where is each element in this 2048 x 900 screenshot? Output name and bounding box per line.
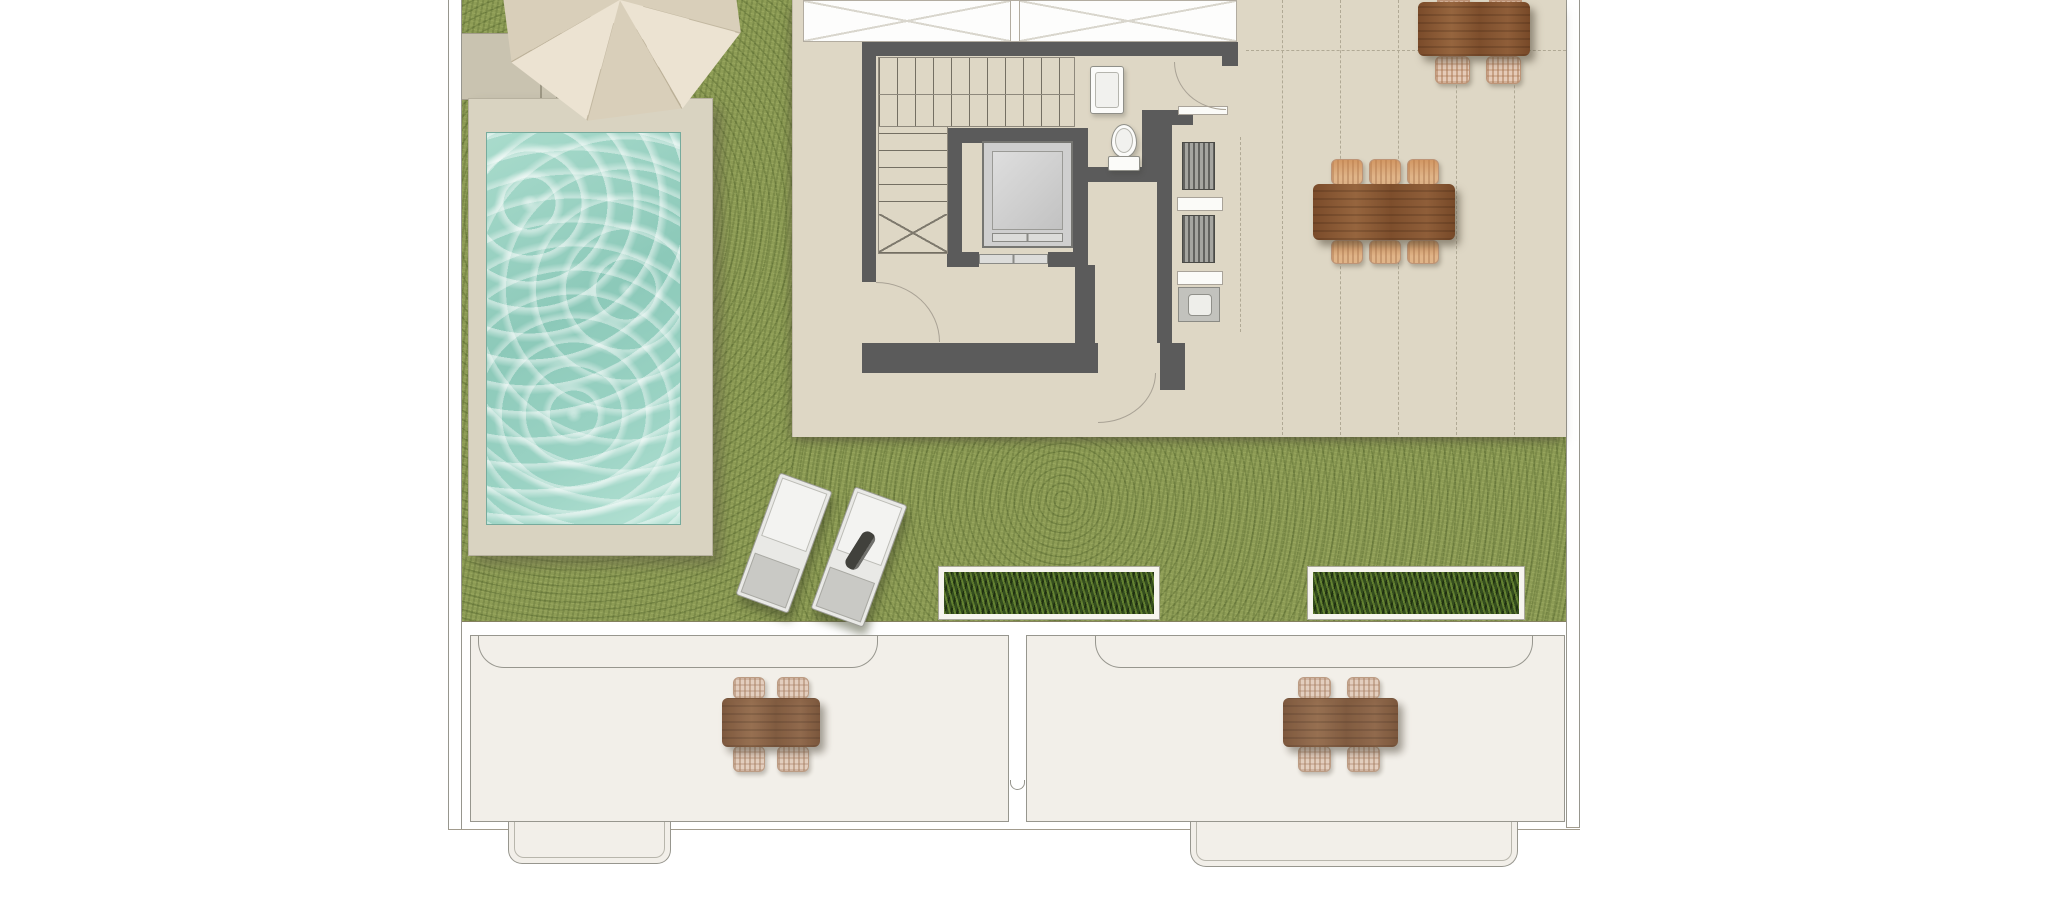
entry-step-inner-line xyxy=(1196,822,1512,861)
stairs-landing-line xyxy=(879,94,1074,95)
wall-kitchen-south xyxy=(1160,343,1185,390)
planter-box-left xyxy=(938,566,1160,620)
kitchen-sink-basin xyxy=(1188,294,1212,316)
dining-chair xyxy=(1331,159,1363,185)
elevator-cab xyxy=(982,141,1073,248)
planter-foliage xyxy=(1313,572,1519,614)
boundary-wall-left xyxy=(448,0,462,830)
planter-foliage xyxy=(944,572,1154,614)
wall-elevator-left xyxy=(947,143,962,267)
stairs-upper-flight xyxy=(878,57,1075,127)
floor-plan-canvas xyxy=(0,0,2048,900)
dining-chair xyxy=(1369,240,1401,264)
entry-step-left xyxy=(508,822,671,864)
wc-sink xyxy=(1090,66,1124,114)
elevator-cab-interior xyxy=(992,151,1063,230)
skylight-cell-right xyxy=(1020,1,1236,41)
wall-kitchen-left xyxy=(1157,110,1172,343)
pool-water xyxy=(486,132,681,525)
dining-table-lower-right xyxy=(1283,698,1398,747)
wall-elevator-bottom-a xyxy=(947,252,979,267)
kitchen-appliance-2 xyxy=(1182,215,1215,263)
dining-chair xyxy=(1347,677,1380,699)
awning-outline-left xyxy=(478,635,878,668)
pergola-beam-line-1 xyxy=(1282,0,1283,435)
elevator-cab-door xyxy=(992,233,1063,242)
kitchen-sink-unit xyxy=(1178,287,1220,322)
elevator-shaft-door xyxy=(979,254,1048,264)
dining-chair xyxy=(777,677,809,699)
downpipe-notch xyxy=(1010,780,1025,790)
dining-chair xyxy=(1298,746,1331,772)
dining-table-lower-left xyxy=(722,698,820,747)
wall-corridor-right xyxy=(1075,265,1095,373)
dining-chair xyxy=(733,677,765,699)
kitchen-appliance-1 xyxy=(1182,142,1215,190)
dining-chair xyxy=(1407,240,1439,264)
dining-chair xyxy=(1486,56,1521,84)
dining-chair xyxy=(1298,677,1331,699)
dining-chair xyxy=(1331,240,1363,264)
kitchen-shelf-2 xyxy=(1177,271,1223,285)
wall-top xyxy=(862,42,1238,56)
wall-wc-right xyxy=(1142,110,1157,182)
dining-chair xyxy=(1407,159,1439,185)
dining-chair xyxy=(1347,746,1380,772)
dining-chair xyxy=(1435,56,1470,84)
wall-bottom xyxy=(862,343,1098,373)
toilet-tank xyxy=(1108,156,1140,171)
planter-box-right xyxy=(1307,566,1525,620)
dining-table-right xyxy=(1313,184,1455,240)
kitchen-counter-dashed-edge xyxy=(1240,137,1241,332)
awning-outline-right xyxy=(1095,635,1533,668)
toilet-bowl xyxy=(1111,124,1137,158)
skylight-divider xyxy=(1010,1,1020,41)
skylight-band xyxy=(803,0,1237,42)
dining-chair xyxy=(1369,159,1401,185)
wc-toilet xyxy=(1108,124,1140,174)
wall-left xyxy=(862,56,876,282)
dining-chair xyxy=(777,746,809,772)
boundary-wall-right xyxy=(1566,0,1580,828)
stairs-break-mark xyxy=(879,214,947,252)
dining-table-top-right xyxy=(1418,2,1530,56)
skylight-cell-left xyxy=(804,1,1010,41)
toilet-seat xyxy=(1115,128,1133,153)
wall-elevator-right xyxy=(1073,143,1088,267)
entry-step-right xyxy=(1190,822,1518,867)
entry-step-inner-line xyxy=(514,822,665,858)
wc-sink-basin xyxy=(1095,72,1119,108)
kitchen-shelf-1 xyxy=(1177,197,1223,211)
dining-chair xyxy=(733,746,765,772)
